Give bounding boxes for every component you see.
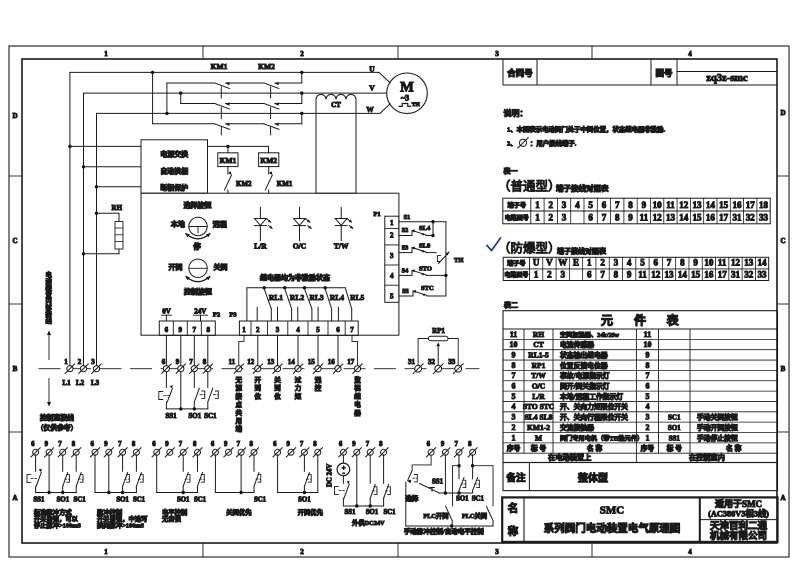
svg-text:说明：: 说明： bbox=[504, 108, 528, 118]
svg-text:zq3z-smc: zq3z-smc bbox=[706, 73, 748, 84]
svg-text:5: 5 bbox=[316, 326, 320, 334]
svg-text:8: 8 bbox=[468, 441, 472, 448]
svg-text:0V: 0V bbox=[162, 308, 171, 316]
svg-text:RL2: RL2 bbox=[290, 293, 304, 302]
svg-text:A: A bbox=[12, 494, 17, 502]
svg-text:SC1: SC1 bbox=[133, 497, 146, 504]
svg-text:开阀: 开阀 bbox=[169, 263, 183, 272]
svg-text:L/R: L/R bbox=[532, 392, 545, 401]
svg-text:关: 关 bbox=[274, 375, 281, 384]
svg-text:适用于SMC: 适用于SMC bbox=[715, 498, 762, 509]
svg-text:5: 5 bbox=[512, 392, 516, 401]
svg-text:11: 11 bbox=[228, 358, 235, 366]
svg-text:9: 9 bbox=[693, 258, 698, 268]
svg-text:C: C bbox=[780, 237, 785, 245]
svg-text:2、: 2、 bbox=[507, 141, 517, 148]
svg-text:电路图号: 电路图号 bbox=[505, 214, 529, 222]
svg-text:31: 31 bbox=[408, 358, 416, 366]
svg-text:10: 10 bbox=[653, 200, 663, 210]
svg-text:RP1: RP1 bbox=[532, 361, 546, 370]
svg-text:电流传感器: 电流传感器 bbox=[560, 340, 594, 349]
svg-text:2: 2 bbox=[512, 423, 516, 432]
svg-text:2: 2 bbox=[600, 258, 605, 268]
svg-text:继电器均为非激励状态: 继电器均为非激励状态 bbox=[260, 273, 330, 282]
svg-text:B: B bbox=[13, 365, 18, 373]
svg-text:RL5: RL5 bbox=[350, 293, 364, 302]
svg-text:7: 7 bbox=[512, 371, 516, 380]
svg-text:阀门专用电机（带TH热元件）: 阀门专用电机（带TH热元件） bbox=[560, 434, 643, 442]
svg-text:SC1: SC1 bbox=[204, 412, 217, 420]
svg-text:本地: 本地 bbox=[170, 220, 185, 229]
svg-text:点: 点 bbox=[236, 400, 243, 409]
svg-text:RL1-5: RL1-5 bbox=[528, 350, 549, 359]
svg-text:8: 8 bbox=[72, 441, 76, 448]
svg-text:自动换相: 自动换相 bbox=[160, 167, 188, 176]
svg-text:KM1-2: KM1-2 bbox=[527, 423, 550, 432]
svg-text:CT: CT bbox=[533, 340, 543, 349]
svg-text:11: 11 bbox=[638, 269, 647, 279]
svg-text:16: 16 bbox=[732, 200, 742, 210]
svg-text:用: 用 bbox=[235, 417, 243, 425]
svg-text:8: 8 bbox=[193, 441, 197, 448]
svg-text:过: 过 bbox=[295, 375, 302, 384]
svg-text:6: 6 bbox=[653, 258, 658, 268]
svg-text:9: 9 bbox=[645, 350, 649, 359]
svg-text:开、关向行程限位开关: 开、关向行程限位开关 bbox=[560, 413, 628, 422]
svg-text:控制旋钮: 控制旋钮 bbox=[184, 287, 212, 296]
svg-text:位: 位 bbox=[255, 391, 262, 400]
svg-text:4: 4 bbox=[575, 200, 580, 210]
svg-text:4: 4 bbox=[390, 272, 394, 280]
svg-text:13: 13 bbox=[267, 358, 275, 366]
svg-text:SO1: SO1 bbox=[298, 497, 311, 504]
svg-text:D: D bbox=[12, 112, 17, 120]
svg-text:11: 11 bbox=[666, 200, 675, 210]
svg-text:到: 到 bbox=[255, 383, 262, 392]
svg-text:端子号: 端子号 bbox=[507, 259, 526, 267]
svg-text:9: 9 bbox=[165, 441, 169, 448]
svg-text:SL8: SL8 bbox=[419, 242, 431, 249]
svg-text:9: 9 bbox=[224, 441, 228, 448]
svg-text:3: 3 bbox=[495, 548, 499, 556]
svg-text:SL4 SL8: SL4 SL8 bbox=[525, 413, 553, 422]
svg-text:端: 端 bbox=[236, 424, 243, 433]
svg-text:1: 1 bbox=[645, 433, 649, 442]
svg-text:6: 6 bbox=[587, 269, 592, 279]
svg-text:9: 9 bbox=[512, 350, 516, 359]
svg-text:6: 6 bbox=[152, 441, 156, 448]
svg-text:2: 2 bbox=[549, 200, 554, 210]
svg-text:14: 14 bbox=[679, 213, 689, 223]
svg-text:53: 53 bbox=[402, 244, 409, 251]
svg-text:14: 14 bbox=[706, 200, 716, 210]
svg-text:件: 件 bbox=[634, 313, 646, 328]
svg-text:共: 共 bbox=[236, 408, 243, 417]
svg-text:1: 1 bbox=[587, 258, 592, 268]
svg-text:6: 6 bbox=[90, 441, 94, 448]
svg-text:24V: 24V bbox=[194, 308, 206, 316]
svg-text:6: 6 bbox=[339, 441, 343, 448]
svg-text:2: 2 bbox=[549, 213, 554, 223]
svg-text:(AC380V3相3线): (AC380V3相3线) bbox=[708, 509, 769, 519]
svg-text:32: 32 bbox=[744, 269, 754, 279]
svg-text:17: 17 bbox=[719, 213, 729, 223]
svg-text:1: 1 bbox=[535, 213, 540, 223]
svg-text:O/C: O/C bbox=[293, 242, 306, 251]
svg-text:7: 7 bbox=[667, 258, 672, 268]
svg-text:7: 7 bbox=[600, 269, 605, 279]
svg-text:6: 6 bbox=[336, 326, 340, 334]
svg-text:P3: P3 bbox=[229, 312, 237, 319]
svg-text:1: 1 bbox=[104, 50, 108, 58]
svg-text:18: 18 bbox=[759, 200, 769, 210]
svg-text:SO1: SO1 bbox=[188, 412, 201, 420]
svg-text:5: 5 bbox=[390, 293, 394, 301]
svg-text:SC1: SC1 bbox=[668, 414, 681, 422]
svg-text:7: 7 bbox=[237, 441, 241, 448]
svg-text:控制室接线: 控制室接线 bbox=[40, 413, 74, 422]
svg-text:（仅供参考）: （仅供参考） bbox=[37, 423, 78, 432]
svg-text:9: 9 bbox=[352, 441, 356, 448]
svg-text:2: 2 bbox=[390, 232, 394, 240]
svg-text:SMC: SMC bbox=[600, 505, 625, 517]
svg-text:17: 17 bbox=[746, 200, 756, 210]
svg-text:6: 6 bbox=[512, 382, 516, 391]
svg-text:1: 1 bbox=[64, 358, 68, 366]
svg-text:标 号: 标 号 bbox=[666, 444, 682, 453]
svg-text:3: 3 bbox=[91, 358, 95, 366]
svg-text:L2: L2 bbox=[76, 379, 85, 387]
svg-text:15: 15 bbox=[691, 269, 701, 279]
svg-text:32: 32 bbox=[428, 358, 436, 366]
svg-text:PLC关阀: PLC关阀 bbox=[462, 511, 487, 520]
svg-text:（普通型）: （普通型） bbox=[498, 180, 561, 194]
svg-text:器: 器 bbox=[353, 408, 361, 417]
svg-text:SO1: SO1 bbox=[116, 497, 129, 504]
svg-text:12: 12 bbox=[731, 258, 741, 268]
svg-text:端子接线对照表: 端子接线对照表 bbox=[556, 183, 609, 193]
svg-text:换向脉冲>100mS: 换向脉冲>100mS bbox=[97, 521, 144, 530]
svg-text:10: 10 bbox=[510, 340, 518, 349]
svg-text:7: 7 bbox=[179, 441, 183, 448]
svg-text:2: 2 bbox=[78, 358, 82, 366]
svg-text:2: 2 bbox=[256, 326, 260, 334]
svg-text:表: 表 bbox=[666, 313, 680, 328]
svg-text:本地/远程工作指示灯: 本地/远程工作指示灯 bbox=[560, 392, 623, 401]
svg-text:在控制室内: 在控制室内 bbox=[689, 453, 725, 462]
svg-text:1: 1 bbox=[512, 433, 516, 442]
svg-text:端子号: 端子号 bbox=[508, 201, 527, 209]
svg-text:B: B bbox=[781, 365, 786, 373]
svg-text:10: 10 bbox=[643, 340, 651, 349]
svg-text:O/C: O/C bbox=[532, 382, 545, 391]
svg-text:7: 7 bbox=[58, 441, 62, 448]
svg-text:P1: P1 bbox=[373, 211, 380, 218]
svg-text:线: 线 bbox=[46, 316, 53, 325]
svg-text:33: 33 bbox=[758, 269, 768, 279]
svg-text:名 称: 名 称 bbox=[726, 444, 741, 453]
svg-text:合同号: 合同号 bbox=[506, 68, 533, 78]
svg-text:A: A bbox=[780, 494, 785, 502]
svg-text:电: 电 bbox=[354, 400, 361, 409]
svg-text:3: 3 bbox=[560, 269, 565, 279]
svg-text:KM2: KM2 bbox=[258, 62, 275, 71]
svg-text:STO STC: STO STC bbox=[523, 402, 554, 411]
svg-text:无: 无 bbox=[235, 376, 243, 384]
svg-text:开阀优先: 开阀优先 bbox=[298, 508, 324, 517]
svg-text:名 称: 名 称 bbox=[587, 444, 602, 453]
svg-text:17: 17 bbox=[718, 269, 728, 279]
svg-text:到: 到 bbox=[274, 383, 281, 392]
svg-text:8: 8 bbox=[313, 441, 317, 448]
svg-text:9: 9 bbox=[642, 200, 647, 210]
svg-text:位: 位 bbox=[274, 391, 281, 400]
svg-text:4: 4 bbox=[627, 258, 632, 268]
svg-text:33: 33 bbox=[448, 358, 456, 366]
svg-text:3: 3 bbox=[562, 213, 567, 223]
svg-text:3: 3 bbox=[562, 200, 567, 210]
svg-text:SC1: SC1 bbox=[254, 497, 267, 504]
svg-text:SC1: SC1 bbox=[74, 497, 87, 504]
svg-text:图号: 图号 bbox=[655, 68, 673, 78]
svg-text:STC: STC bbox=[421, 285, 434, 292]
svg-text:U: U bbox=[369, 64, 375, 73]
svg-text:2: 2 bbox=[547, 269, 552, 279]
svg-text:7: 7 bbox=[454, 441, 458, 448]
svg-text:6: 6 bbox=[602, 200, 607, 210]
svg-text:8: 8 bbox=[207, 326, 211, 334]
svg-text:13: 13 bbox=[693, 200, 703, 210]
svg-text:1: 1 bbox=[390, 219, 394, 227]
svg-text:W: W bbox=[366, 105, 374, 114]
svg-text:SS1: SS1 bbox=[345, 509, 357, 516]
svg-text:SS1: SS1 bbox=[432, 479, 444, 486]
svg-text:6: 6 bbox=[211, 441, 215, 448]
svg-text:开: 开 bbox=[255, 376, 262, 384]
svg-text:8: 8 bbox=[680, 258, 685, 268]
svg-text:13: 13 bbox=[665, 269, 675, 279]
svg-text:TH: TH bbox=[412, 102, 421, 108]
svg-text:名: 名 bbox=[508, 502, 519, 515]
svg-text:7: 7 bbox=[118, 441, 122, 448]
svg-text:8: 8 bbox=[132, 441, 136, 448]
svg-text:L/R: L/R bbox=[254, 242, 267, 251]
svg-text:9: 9 bbox=[628, 213, 633, 223]
svg-text:5: 5 bbox=[588, 200, 593, 210]
svg-text:SC1: SC1 bbox=[383, 509, 396, 516]
svg-text:3: 3 bbox=[390, 252, 394, 260]
svg-text:17: 17 bbox=[347, 358, 355, 366]
svg-text:3: 3 bbox=[276, 326, 280, 334]
svg-text:P2: P2 bbox=[213, 312, 220, 319]
svg-text:事故/电源指示灯: 事故/电源指示灯 bbox=[560, 371, 610, 380]
svg-text:端子接线对照表: 端子接线对照表 bbox=[557, 247, 607, 256]
svg-text:2: 2 bbox=[645, 423, 649, 432]
svg-text:PLC开阀: PLC开阀 bbox=[423, 511, 448, 520]
svg-text:1: 1 bbox=[242, 326, 246, 334]
svg-text:8: 8 bbox=[512, 361, 516, 370]
svg-text:14: 14 bbox=[758, 258, 768, 268]
svg-text:5: 5 bbox=[640, 258, 645, 268]
svg-text:10: 10 bbox=[704, 258, 714, 268]
svg-text:33: 33 bbox=[759, 213, 769, 223]
svg-text:SO1: SO1 bbox=[366, 509, 379, 516]
svg-text:V: V bbox=[546, 258, 553, 268]
svg-text:交流接触器: 交流接触器 bbox=[560, 423, 594, 432]
svg-text:6: 6 bbox=[427, 441, 431, 448]
svg-text:13: 13 bbox=[744, 258, 754, 268]
svg-text:T/W: T/W bbox=[531, 371, 546, 380]
svg-text:1、本图表示电动阀门处于中间位置，状态继电器非激励.: 1、本图表示电动阀门处于中间位置，状态继电器非激励. bbox=[507, 125, 666, 134]
svg-text:选择旋钮: 选择旋钮 bbox=[184, 201, 212, 210]
svg-text:7: 7 bbox=[193, 326, 197, 334]
svg-text:手动关阀按钮: 手动关阀按钮 bbox=[697, 413, 738, 422]
svg-text:1: 1 bbox=[535, 200, 540, 210]
svg-text:M: M bbox=[535, 433, 542, 442]
svg-text:RL4: RL4 bbox=[330, 293, 344, 302]
svg-text:7: 7 bbox=[366, 441, 370, 448]
svg-text:7: 7 bbox=[350, 326, 354, 334]
svg-text:控: 控 bbox=[315, 383, 322, 392]
svg-text:机械有限公司: 机械有限公司 bbox=[710, 530, 767, 542]
svg-text:STO: STO bbox=[419, 266, 432, 273]
svg-text:开、关向力矩限位开关: 开、关向力矩限位开关 bbox=[560, 402, 628, 411]
svg-text:表二: 表二 bbox=[503, 301, 518, 310]
svg-text:4: 4 bbox=[688, 50, 692, 58]
svg-text:空间加温器、24k/25w: 空间加温器、24k/25w bbox=[560, 331, 620, 339]
svg-text:9: 9 bbox=[104, 441, 108, 448]
svg-text:8: 8 bbox=[203, 358, 207, 366]
svg-text:称: 称 bbox=[508, 525, 519, 538]
svg-text:RL1: RL1 bbox=[269, 293, 283, 302]
svg-text:7: 7 bbox=[602, 213, 607, 223]
svg-text:6: 6 bbox=[165, 326, 169, 334]
svg-text:16: 16 bbox=[328, 358, 336, 366]
svg-text:9: 9 bbox=[286, 441, 290, 448]
svg-text:2: 2 bbox=[300, 548, 304, 556]
svg-text:整体型: 整体型 bbox=[577, 472, 608, 485]
svg-text:系列阀门电动装置电气原理图: 系列阀门电动装置电气原理图 bbox=[544, 522, 681, 535]
svg-text:7: 7 bbox=[300, 441, 304, 448]
svg-text:31: 31 bbox=[731, 269, 741, 279]
svg-text:12: 12 bbox=[247, 358, 255, 366]
svg-text:9: 9 bbox=[176, 358, 180, 366]
svg-text:9: 9 bbox=[441, 441, 445, 448]
svg-text:SC1: SC1 bbox=[472, 496, 485, 503]
svg-text:12: 12 bbox=[679, 200, 689, 210]
svg-text:手动停止按钮: 手动停止按钮 bbox=[697, 433, 738, 442]
svg-text:KM2: KM2 bbox=[260, 156, 277, 165]
svg-text:4: 4 bbox=[296, 326, 300, 334]
svg-text:L1: L1 bbox=[62, 379, 71, 387]
svg-text:9: 9 bbox=[45, 441, 49, 448]
svg-text:14: 14 bbox=[288, 358, 296, 366]
svg-text:12: 12 bbox=[651, 269, 661, 279]
svg-text:14: 14 bbox=[678, 269, 688, 279]
svg-text:外供DC24V: 外供DC24V bbox=[352, 518, 385, 527]
svg-text:源: 源 bbox=[236, 383, 243, 392]
svg-text:7: 7 bbox=[645, 371, 649, 380]
svg-text:备注: 备注 bbox=[505, 472, 526, 484]
svg-text:KM1: KM1 bbox=[277, 180, 293, 188]
svg-text:1: 1 bbox=[104, 548, 108, 556]
svg-text:远: 远 bbox=[315, 376, 322, 384]
svg-text:C: C bbox=[12, 237, 17, 245]
svg-text:51: 51 bbox=[404, 214, 411, 221]
svg-text:停止脉冲>100mS: 停止脉冲>100mS bbox=[34, 521, 81, 530]
svg-text:9: 9 bbox=[179, 326, 183, 334]
svg-text:RL3: RL3 bbox=[310, 293, 324, 302]
svg-text:表一: 表一 bbox=[503, 167, 518, 176]
svg-text:8: 8 bbox=[614, 269, 619, 279]
svg-text:状态输出继电器: 状态输出继电器 bbox=[560, 350, 608, 359]
svg-text:序号: 序号 bbox=[641, 444, 655, 453]
svg-text:接: 接 bbox=[236, 391, 243, 400]
svg-text:6: 6 bbox=[588, 213, 593, 223]
svg-text:SO1: SO1 bbox=[668, 424, 681, 432]
svg-text:1: 1 bbox=[534, 269, 539, 279]
svg-text:~3: ~3 bbox=[401, 94, 409, 103]
svg-text:6: 6 bbox=[273, 441, 277, 448]
svg-text:3: 3 bbox=[614, 258, 619, 268]
svg-text:12: 12 bbox=[653, 213, 663, 223]
svg-text:V: V bbox=[369, 84, 375, 93]
svg-text:11: 11 bbox=[510, 330, 518, 339]
svg-text:KM2: KM2 bbox=[236, 180, 252, 188]
svg-text:天津百利二通: 天津百利二通 bbox=[710, 520, 768, 532]
svg-text:CT: CT bbox=[331, 101, 341, 109]
svg-text:KM1: KM1 bbox=[211, 62, 228, 71]
svg-text:11: 11 bbox=[718, 258, 727, 268]
svg-text:SL4: SL4 bbox=[419, 225, 431, 232]
svg-text:8: 8 bbox=[615, 213, 620, 223]
svg-text:RH: RH bbox=[533, 330, 544, 339]
svg-text:31: 31 bbox=[732, 213, 742, 223]
svg-text:关阀优先: 关阀优先 bbox=[226, 508, 252, 517]
svg-text:手动开阀按钮: 手动开阀按钮 bbox=[697, 423, 738, 432]
svg-text:13: 13 bbox=[666, 213, 676, 223]
svg-text:T/W: T/W bbox=[334, 242, 349, 251]
svg-text:：用户接线端子.: ：用户接线端子. bbox=[530, 139, 577, 148]
svg-text:55: 55 bbox=[402, 288, 409, 295]
svg-text:6: 6 bbox=[645, 382, 649, 391]
svg-text:4: 4 bbox=[645, 402, 649, 411]
svg-text:TH: TH bbox=[454, 257, 463, 264]
svg-text:8: 8 bbox=[645, 361, 649, 370]
svg-text:9: 9 bbox=[627, 269, 632, 279]
svg-text:序号: 序号 bbox=[507, 444, 521, 453]
svg-text:SS1: SS1 bbox=[165, 412, 177, 420]
svg-text:4: 4 bbox=[688, 548, 692, 556]
svg-text:SO1: SO1 bbox=[456, 496, 469, 503]
svg-text:继: 继 bbox=[354, 391, 361, 400]
svg-text:4: 4 bbox=[512, 402, 516, 411]
svg-text:U: U bbox=[533, 258, 540, 268]
svg-text:视: 视 bbox=[354, 383, 361, 392]
svg-text:L3: L3 bbox=[91, 379, 100, 387]
svg-text:矩: 矩 bbox=[294, 391, 302, 400]
svg-text:32: 32 bbox=[746, 213, 756, 223]
svg-text:15: 15 bbox=[719, 200, 729, 210]
svg-text:KM1: KM1 bbox=[220, 156, 237, 165]
svg-text:15: 15 bbox=[693, 213, 703, 223]
svg-text:远程: 远程 bbox=[213, 220, 227, 229]
svg-text:电路图号: 电路图号 bbox=[504, 271, 528, 279]
svg-text:16: 16 bbox=[706, 213, 716, 223]
svg-text:监: 监 bbox=[354, 375, 361, 384]
svg-text:D: D bbox=[780, 109, 785, 117]
svg-text:3: 3 bbox=[495, 50, 499, 58]
